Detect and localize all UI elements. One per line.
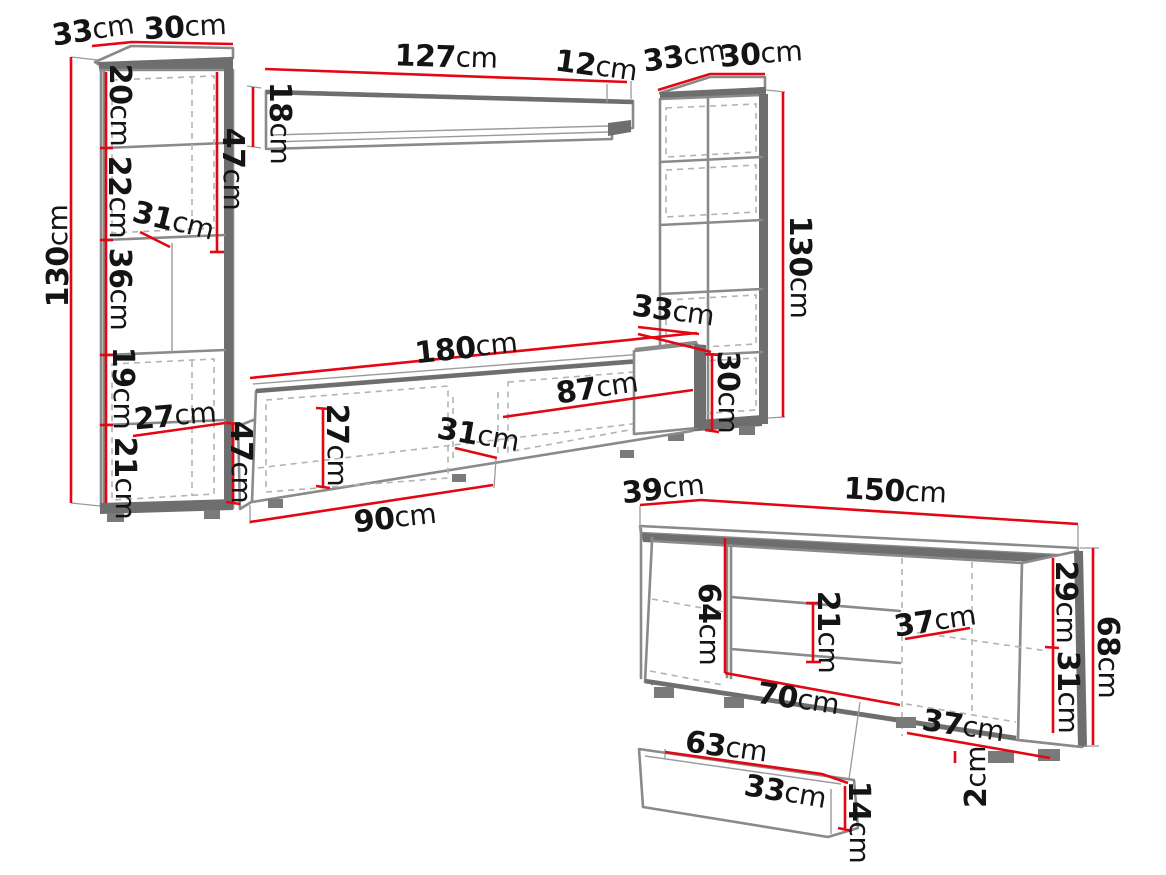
diagram-canvas: 33cm 30cm 130cm 20cm 22cm 36cm 19cm 21cm… bbox=[0, 0, 1166, 875]
dim-wall-shelf-length: 127cm bbox=[394, 38, 498, 77]
dim-right-cabinet-height: 130cm bbox=[783, 216, 818, 319]
dim-left-cabinet-width: 30cm bbox=[143, 7, 227, 46]
dim-sideboard-length: 150cm bbox=[843, 471, 947, 511]
dim-left-cabinet-section3: 36cm bbox=[103, 248, 138, 330]
dim-left-cabinet-section5: 21cm bbox=[108, 437, 143, 519]
furniture-dimension-diagram: 33cm 30cm 130cm 20cm 22cm 36cm 19cm 21cm… bbox=[0, 0, 1166, 875]
dim-sideboard-upper-29: 29cm bbox=[1049, 561, 1084, 643]
tv-stand-right-end bbox=[634, 344, 697, 434]
dim-sideboard-interior-64: 64cm bbox=[692, 583, 727, 665]
dim-wall-shelf-return: 12cm bbox=[553, 43, 639, 89]
dim-right-cabinet-depth: 33cm bbox=[641, 33, 727, 79]
dim-tv-stand-height-27: 27cm bbox=[320, 404, 355, 486]
dim-tv-stand-door-90: 90cm bbox=[352, 496, 438, 539]
dim-left-cabinet-upper-47: 47cm bbox=[216, 128, 251, 210]
dim-wall-shelf-height: 18cm bbox=[263, 82, 298, 164]
dim-left-cabinet-section1: 20cm bbox=[103, 64, 138, 146]
dim-sideboard-foot-2: 2cm bbox=[959, 746, 994, 808]
dim-tv-stand-length: 180cm bbox=[413, 325, 519, 371]
wall-shelf bbox=[266, 91, 633, 149]
dim-left-cabinet-height: 130cm bbox=[41, 205, 76, 308]
dim-sideboard-height-68: 68cm bbox=[1091, 616, 1126, 698]
dim-sideboard-drawer-21: 21cm bbox=[811, 591, 846, 673]
dim-right-cabinet-width: 30cm bbox=[719, 34, 804, 75]
dim-left-cabinet-depth: 33cm bbox=[50, 7, 136, 53]
dim-tv-stand-end-height: 30cm bbox=[711, 351, 746, 433]
dim-sideboard-depth: 39cm bbox=[620, 467, 706, 510]
dim-sideboard-lower-31: 31cm bbox=[1051, 651, 1086, 733]
dim-drawer-height: 14cm bbox=[842, 781, 877, 863]
dim-tv-stand-left-height: 47cm bbox=[224, 421, 259, 503]
